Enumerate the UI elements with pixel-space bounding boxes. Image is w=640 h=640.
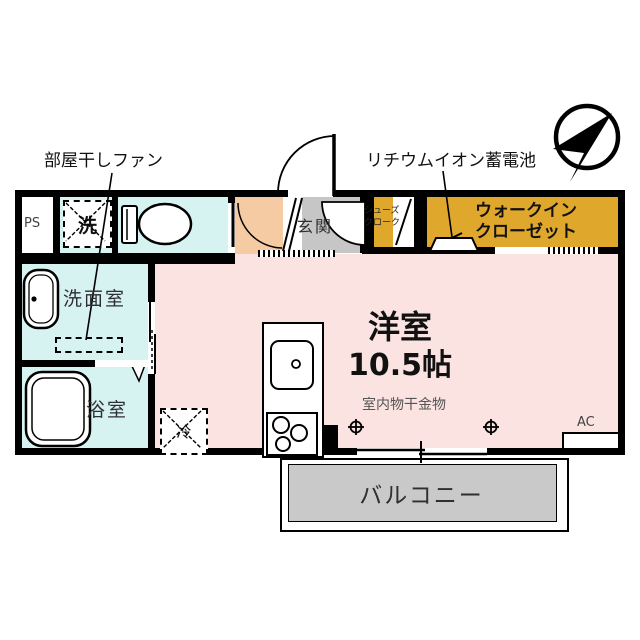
drying-hardware-label: 室内物干金物 <box>362 394 446 414</box>
washing-machine-box: 洗 <box>63 200 112 248</box>
shoe-closet-line1: シューズ <box>364 206 400 218</box>
entrance-door-arc <box>278 136 335 193</box>
wall-top-right <box>333 190 625 197</box>
ps-label: PS <box>24 216 40 231</box>
room-hallway <box>235 197 283 254</box>
wall-wic-left <box>414 190 427 253</box>
wall-right <box>618 190 625 455</box>
kitchen-sink-icon <box>270 340 314 390</box>
balcony-label: バルコニー <box>288 476 555 510</box>
ac-unit <box>562 432 620 450</box>
floor-plan: 洗 冷 <box>0 0 640 640</box>
washroom-label: 洗面室 <box>63 284 126 311</box>
wic-threshold <box>548 247 600 254</box>
walk-in-closet-line1: ウォークイン <box>440 201 612 222</box>
compass-icon <box>553 106 618 182</box>
drying-fan-label: 部屋干しファン <box>44 146 163 171</box>
refrigerator-box: 冷 <box>160 408 208 455</box>
wall-washroom-right-top <box>148 264 155 302</box>
walk-in-closet-line2: クローゼット <box>440 222 612 243</box>
shoe-closet-line2: クローク <box>364 218 400 230</box>
wall-washroom-right-bottom <box>148 374 155 448</box>
wall-band-left <box>15 253 235 264</box>
battery-label: リチウムイオン蓄電池 <box>366 146 536 171</box>
wall-left <box>15 190 22 455</box>
bathroom-door-gap <box>95 360 148 367</box>
walk-in-closet-label: ウォークイン クローゼット <box>440 201 612 244</box>
entrance-label: 玄関 <box>297 213 333 237</box>
ac-label: AC <box>577 415 595 430</box>
room-toilet <box>118 197 228 253</box>
shoe-closet-label: シューズ クローク <box>364 206 400 229</box>
stove-icon <box>266 412 318 456</box>
room-bathroom <box>22 367 148 448</box>
wall-wic-bottom-left <box>362 247 495 254</box>
wall-wic-bottom-right <box>600 247 618 254</box>
entrance-threshold <box>258 250 335 257</box>
washing-machine-label: 洗 <box>78 211 97 238</box>
wall-bath-divider <box>15 360 95 367</box>
bathroom-label: 浴室 <box>86 395 128 422</box>
drying-fan-target <box>55 337 123 353</box>
wall-toilet-right-stub <box>228 190 235 203</box>
main-room-size-label: 10.5帖 <box>322 340 478 384</box>
refrigerator-label: 冷 <box>176 421 191 442</box>
